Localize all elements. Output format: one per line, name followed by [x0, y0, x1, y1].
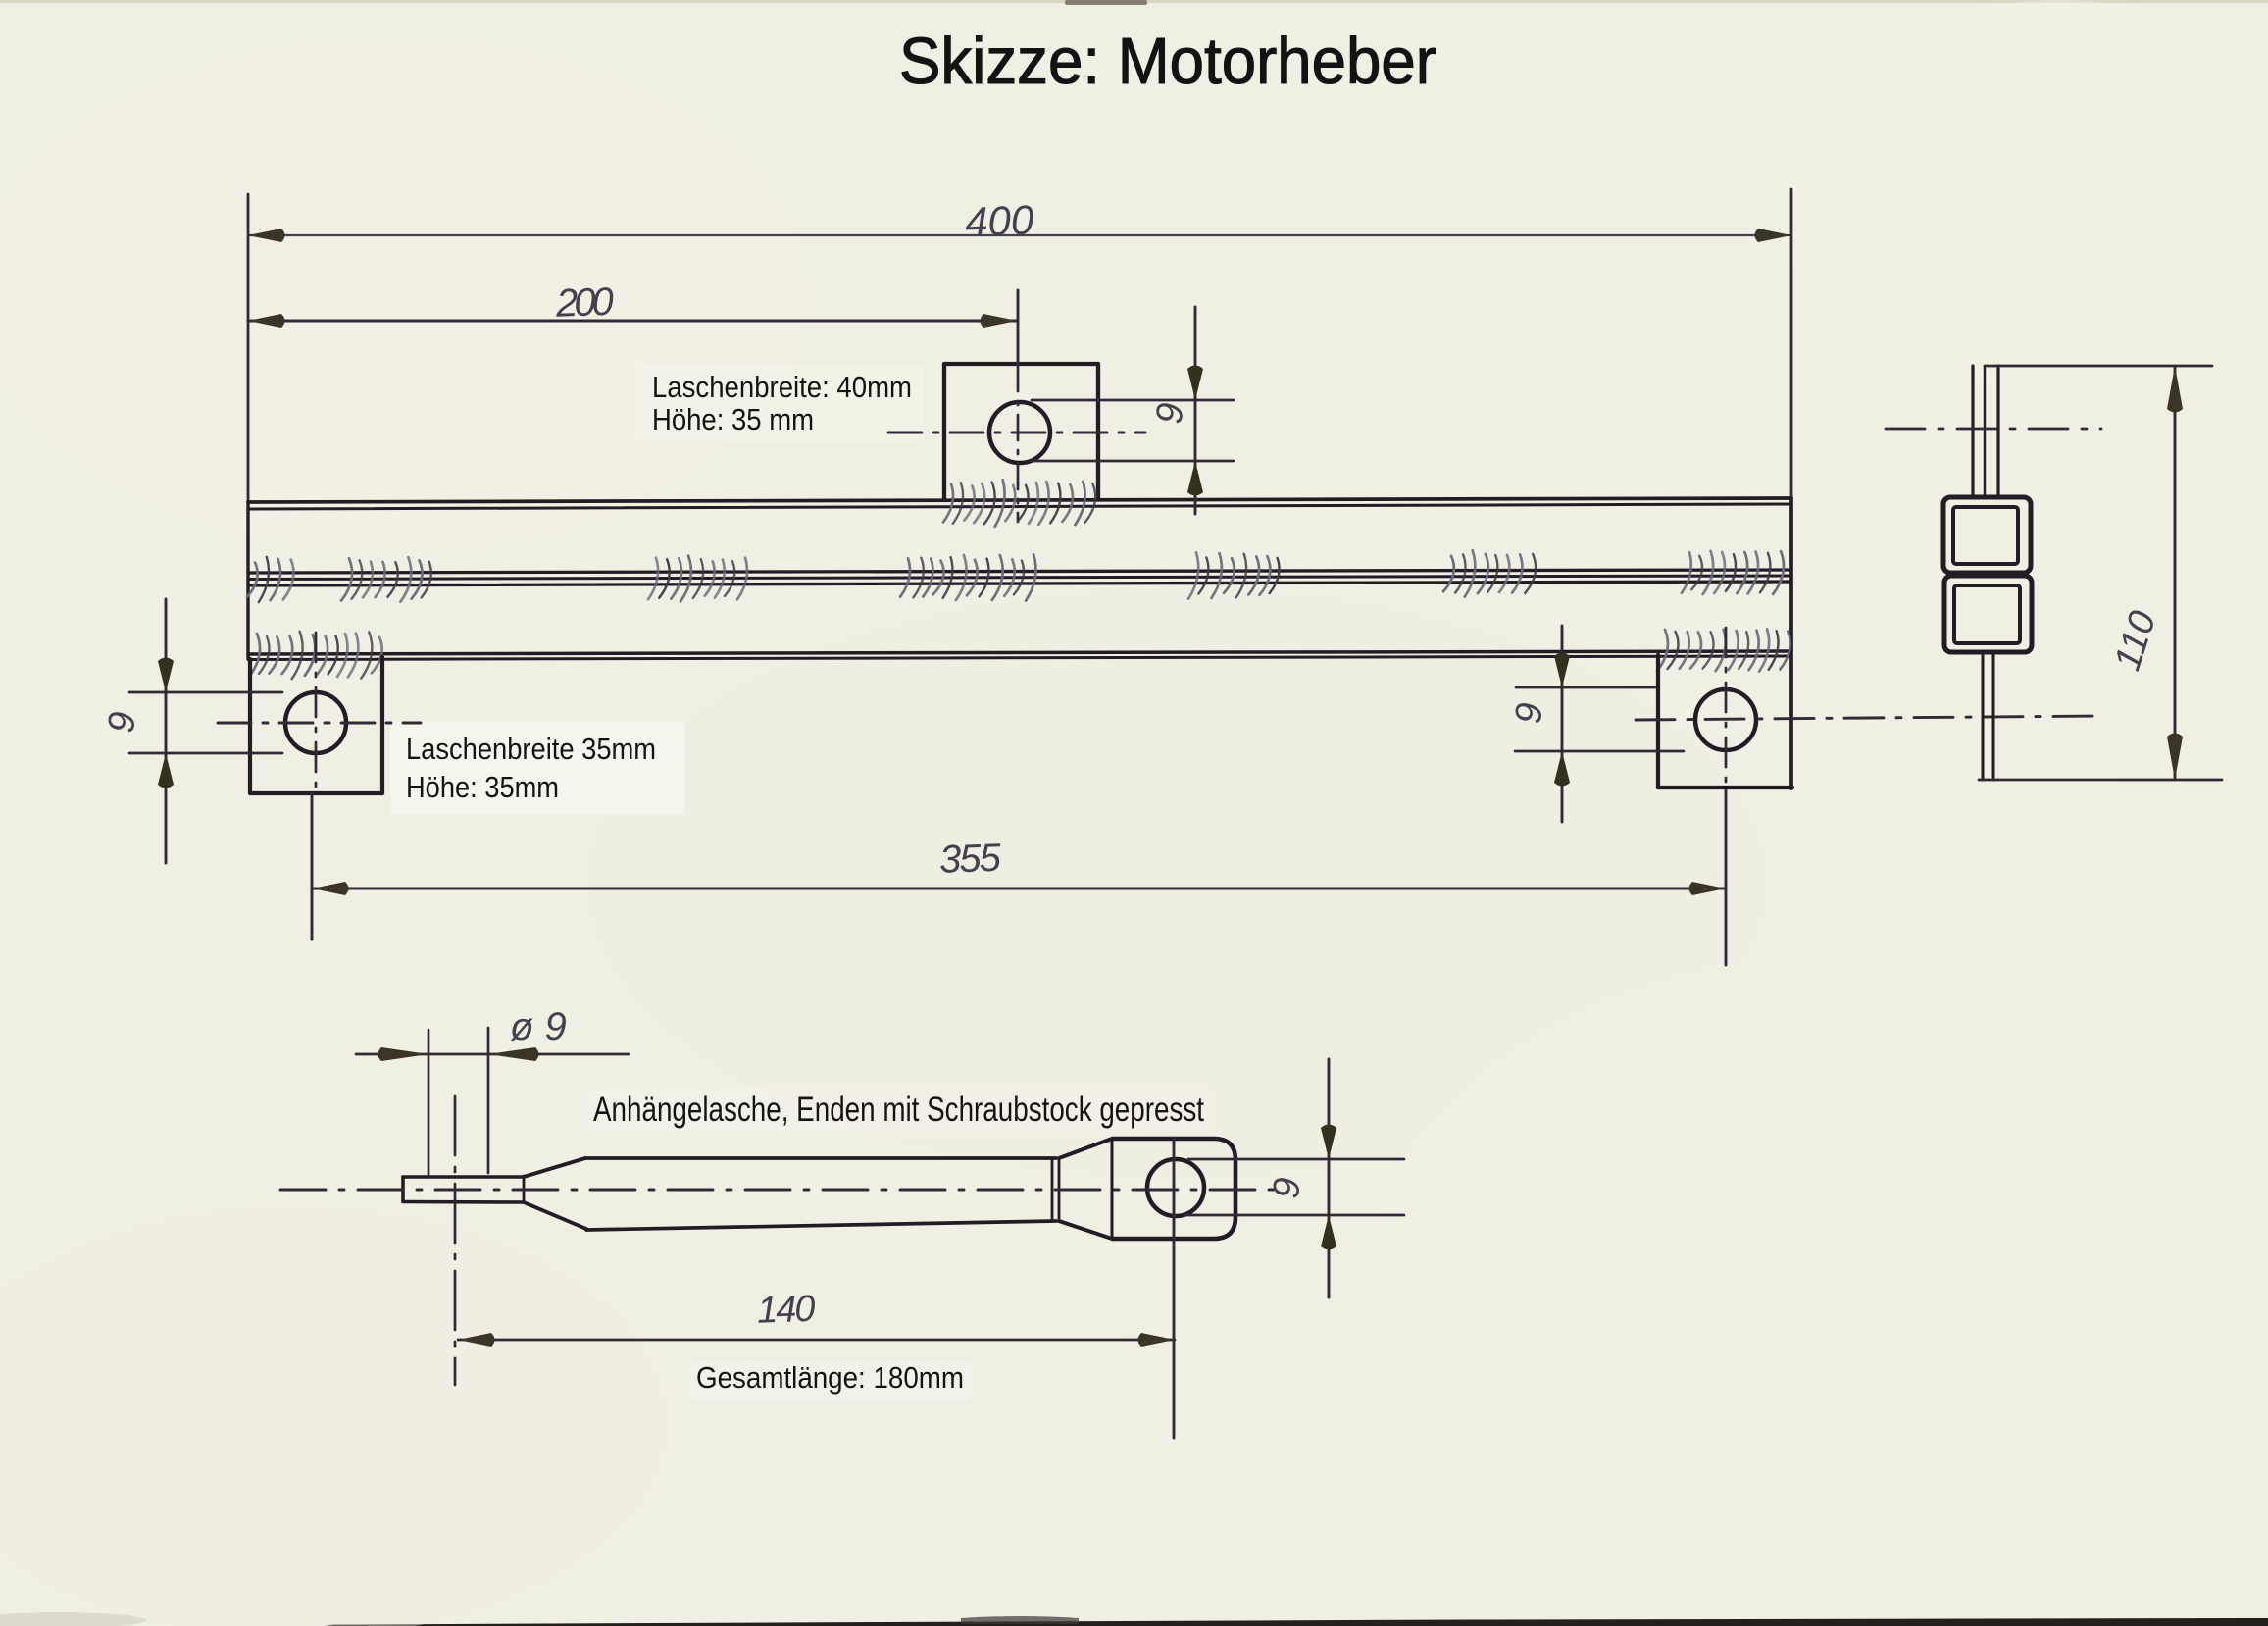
svg-text:Laschenbreite: 40mm: Laschenbreite: 40mm	[652, 371, 912, 404]
svg-text:Skizze: Motorheber: Skizze: Motorheber	[899, 25, 1436, 98]
svg-text:Höhe: 35mm: Höhe: 35mm	[406, 771, 559, 804]
svg-text:Höhe: 35 mm: Höhe: 35 mm	[652, 403, 814, 436]
svg-text:9: 9	[1266, 1176, 1309, 1200]
svg-text:355: 355	[938, 837, 1002, 882]
svg-text:Anhängelasche, Enden mit Schra: Anhängelasche, Enden mit Schraubstock ge…	[593, 1091, 1204, 1129]
svg-text:140: 140	[756, 1289, 816, 1332]
svg-text:9: 9	[1508, 701, 1551, 726]
svg-text:ø 9: ø 9	[510, 1005, 567, 1048]
svg-text:200: 200	[554, 280, 614, 326]
svg-text:Gesamtlänge: 180mm: Gesamtlänge: 180mm	[696, 1361, 964, 1395]
svg-text:9: 9	[1149, 401, 1192, 426]
svg-text:Laschenbreite 35mm: Laschenbreite 35mm	[406, 733, 656, 766]
svg-text:9: 9	[101, 710, 144, 735]
svg-text:400: 400	[964, 196, 1034, 244]
